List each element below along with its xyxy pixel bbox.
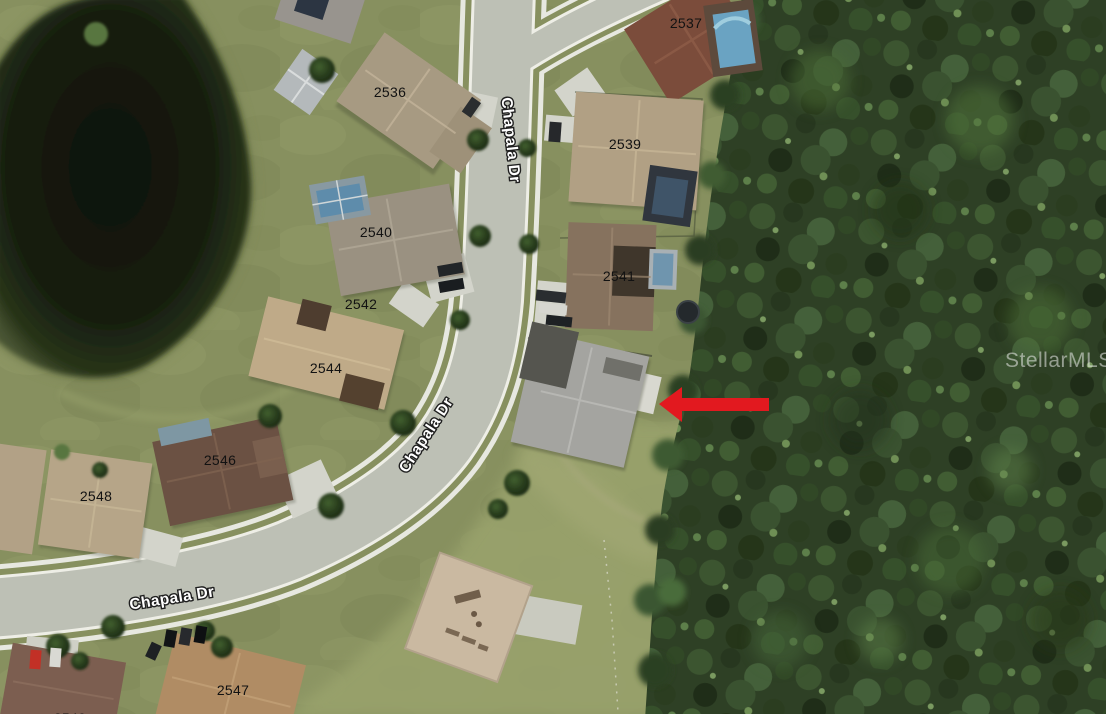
house-number-2542: 2542 — [345, 296, 377, 312]
pool-2537 — [703, 0, 763, 77]
house-number-2544: 2544 — [310, 360, 342, 376]
house-number-2548: 2548 — [80, 488, 112, 504]
house-number-2541: 2541 — [603, 268, 635, 284]
mls-aerial-photo: 2536 2537 2539 2540 2541 2542 2544 2546 … — [0, 0, 1106, 714]
house-number-2546: 2546 — [204, 452, 236, 468]
house-number-2549-partial: 2549 — [54, 710, 86, 714]
house-number-2540: 2540 — [360, 224, 392, 240]
house-number-2539: 2539 — [609, 136, 641, 152]
house-number-2547: 2547 — [217, 682, 249, 698]
trampoline — [677, 301, 699, 323]
house-number-2536: 2536 — [374, 84, 406, 100]
pool-2539 — [642, 165, 697, 227]
house-number-2537: 2537 — [670, 15, 702, 31]
stellar-mls-watermark: StellarMLS — [1005, 349, 1106, 372]
satellite-map: 2536 2537 2539 2540 2541 2542 2544 2546 … — [0, 0, 1106, 714]
